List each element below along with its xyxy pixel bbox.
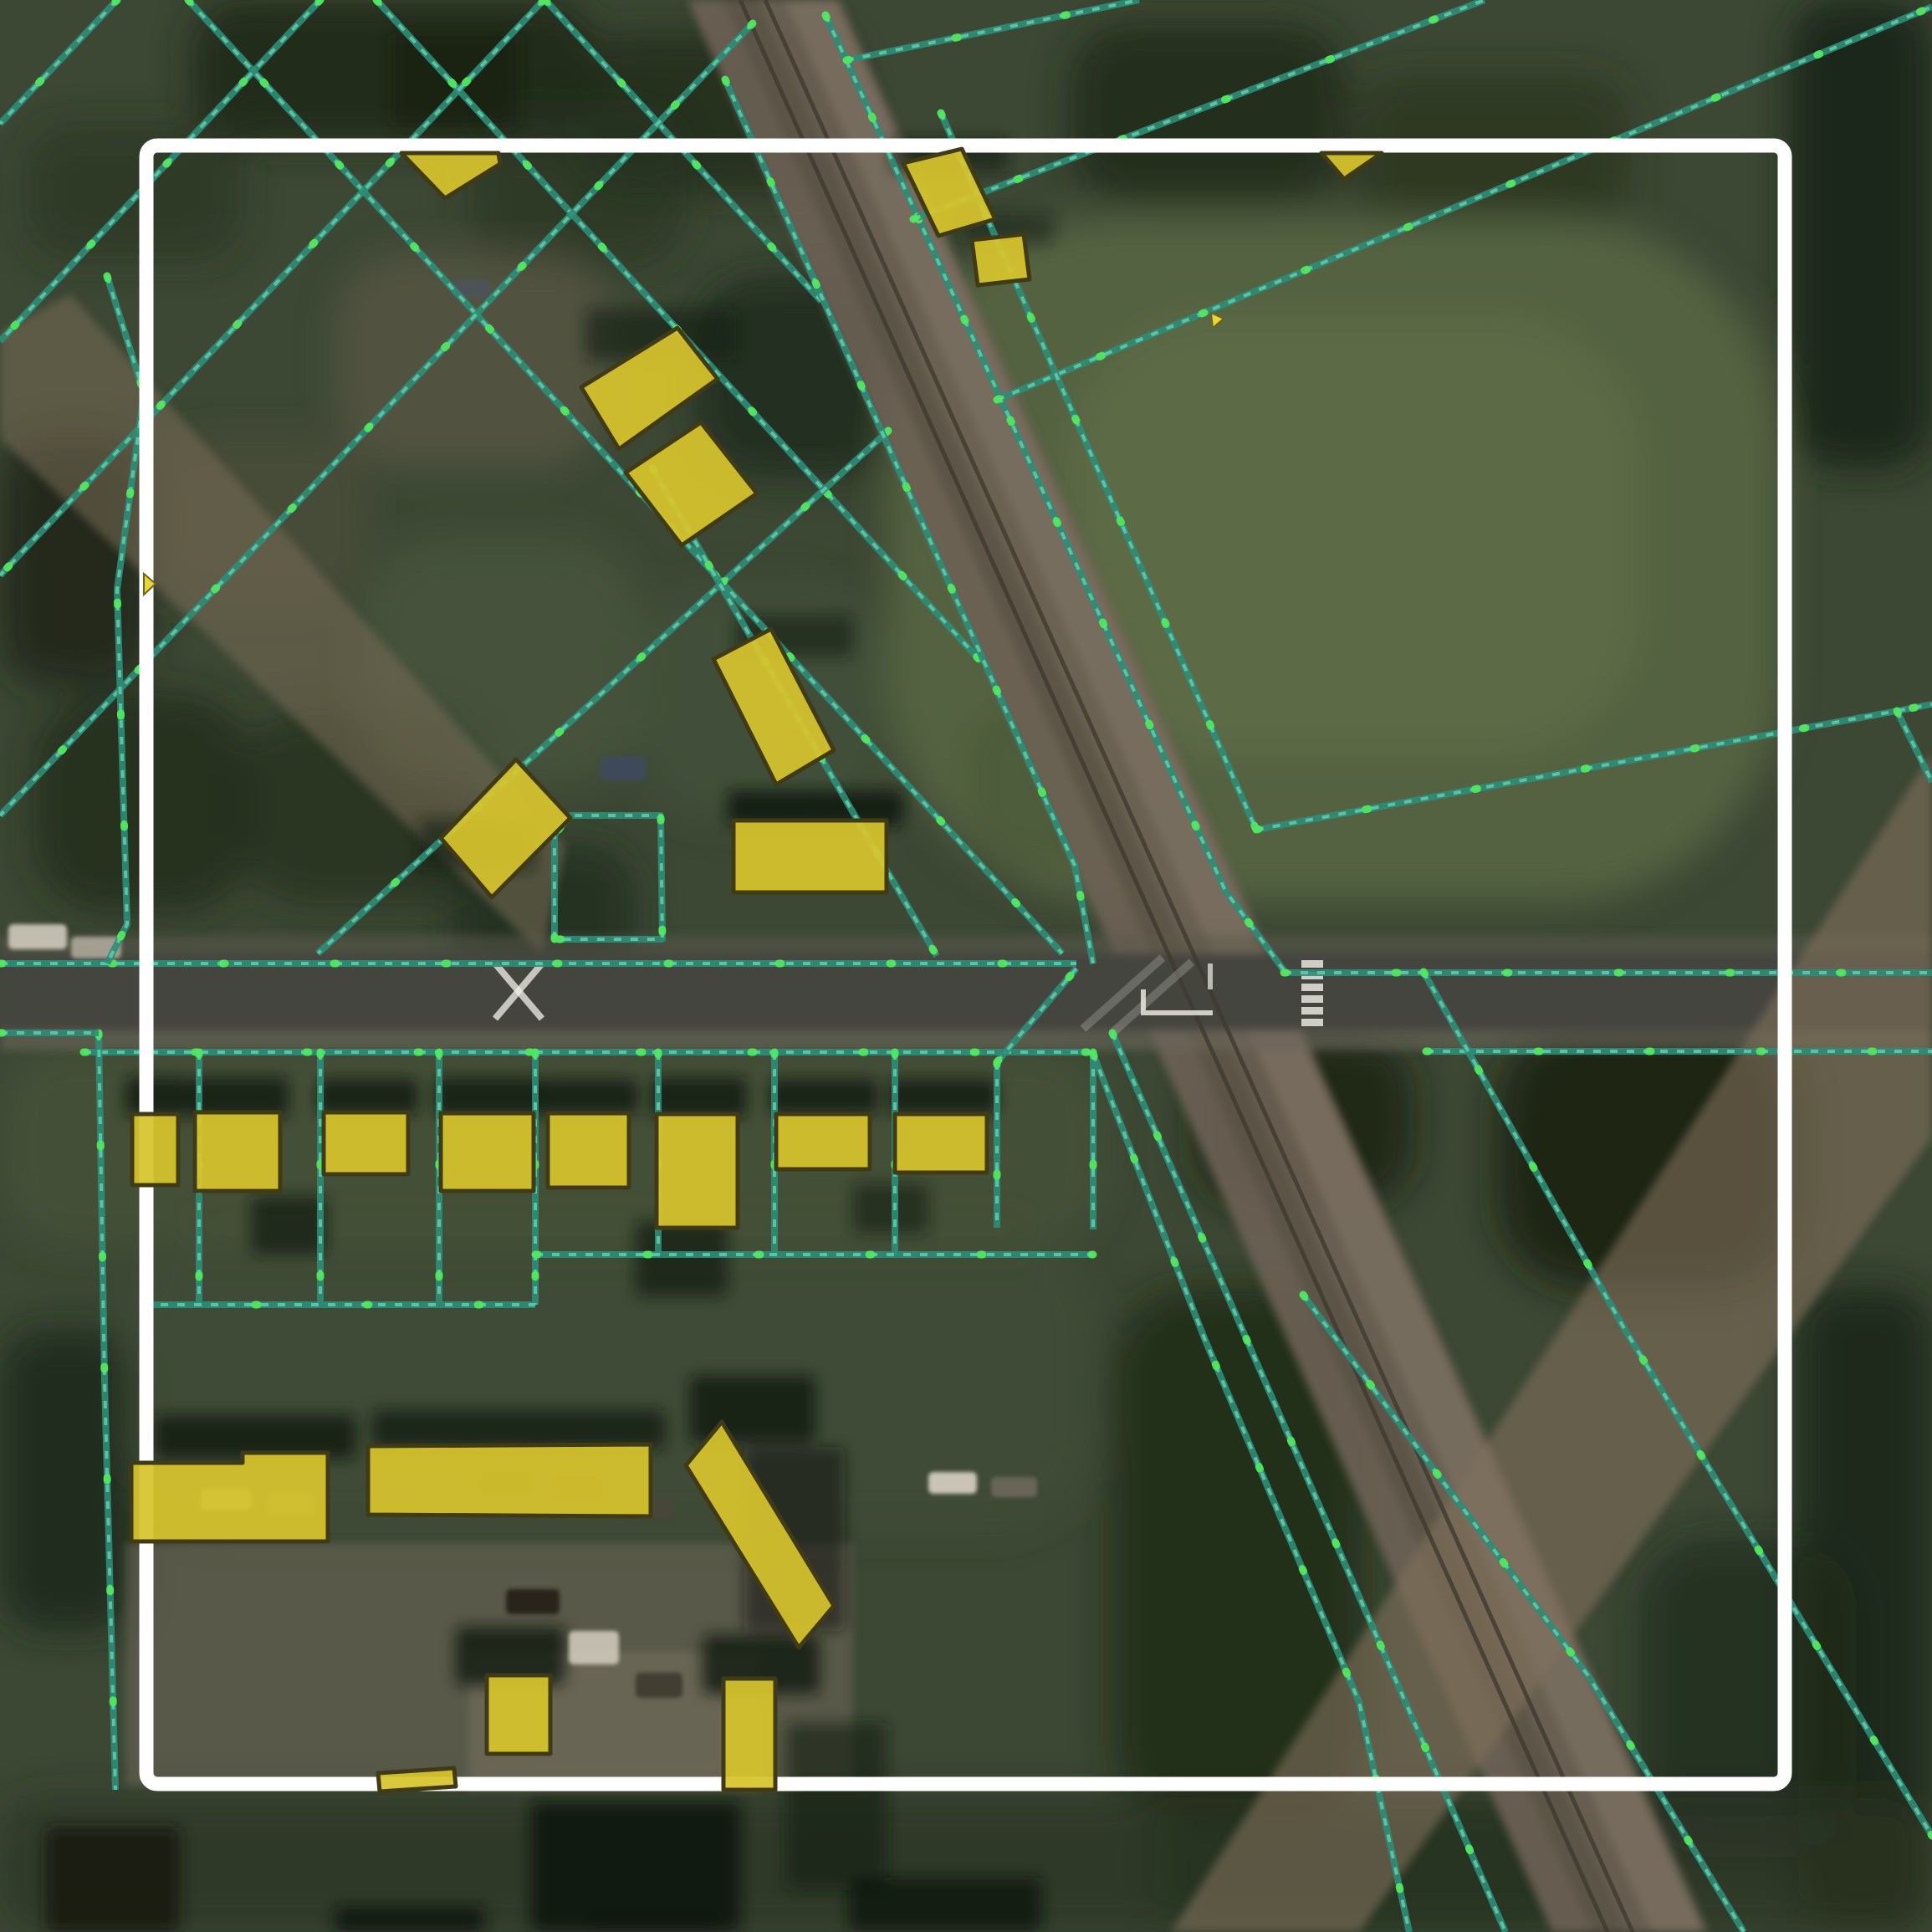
house-row-1[interactable] [132, 1114, 178, 1185]
shadow-patch [636, 1221, 728, 1296]
shadow-patch [542, 1079, 638, 1114]
terrain-patch [1071, 25, 1347, 201]
aerial-annotation-scene [0, 0, 1932, 1932]
map-canvas[interactable] [0, 0, 1932, 1932]
house-row-4[interactable] [441, 1113, 534, 1191]
bldg-small-bottom-center[interactable] [723, 1679, 775, 1790]
shadow-patch [318, 1079, 418, 1114]
crossing-stripe [1301, 984, 1323, 991]
road-shoulder-bottom [0, 1030, 1932, 1050]
bldg-wide-rect[interactable] [733, 820, 887, 892]
vehicle [569, 1631, 619, 1664]
shadow-patch [849, 1878, 1041, 1932]
shadow-patch [651, 1077, 747, 1117]
shadow-patch [769, 1079, 878, 1114]
house-row-6[interactable] [657, 1114, 738, 1228]
terrain-patch [0, 1330, 134, 1631]
shadow-patch [46, 1827, 180, 1932]
crossing-stripe [1301, 995, 1323, 1003]
shadow-patch [888, 1079, 997, 1114]
shadow-patch [585, 1915, 719, 1932]
crossing-stripe [1301, 960, 1323, 968]
shadow-patch [690, 1376, 815, 1443]
bldg-long-left[interactable] [131, 1453, 328, 1541]
vehicle [636, 1673, 682, 1698]
crossing-stripe [1301, 1019, 1323, 1026]
house-row-2[interactable] [195, 1112, 280, 1191]
house-row-8[interactable] [895, 1114, 987, 1173]
crossing-stripe [1301, 1007, 1323, 1015]
vehicle [8, 924, 67, 949]
vehicle [928, 1472, 977, 1494]
shadow-patch [435, 1077, 544, 1116]
shadow-patch [786, 1723, 887, 1890]
bldg-small-bottom-left[interactable] [487, 1675, 550, 1754]
shadow-patch [125, 1077, 188, 1116]
bldg-small-rect-east[interactable] [972, 234, 1030, 285]
house-row-5[interactable] [548, 1113, 629, 1188]
road-shoulder-top [0, 935, 1932, 953]
shadow-patch [251, 1196, 326, 1255]
house-row-3[interactable] [324, 1112, 408, 1174]
shadow-patch [335, 1907, 485, 1932]
bldg-long-right[interactable] [368, 1444, 651, 1516]
house-row-7[interactable] [776, 1114, 870, 1169]
terrain-patch [1071, 318, 1639, 753]
bldg-sliver-bottom[interactable] [378, 1768, 456, 1791]
terrain-patch [1790, 0, 1932, 468]
vehicle [506, 1589, 560, 1614]
shadow-patch [853, 1183, 928, 1234]
shadow-patch [531, 1802, 740, 1932]
vehicle [991, 1477, 1037, 1497]
vehicle [601, 757, 647, 780]
